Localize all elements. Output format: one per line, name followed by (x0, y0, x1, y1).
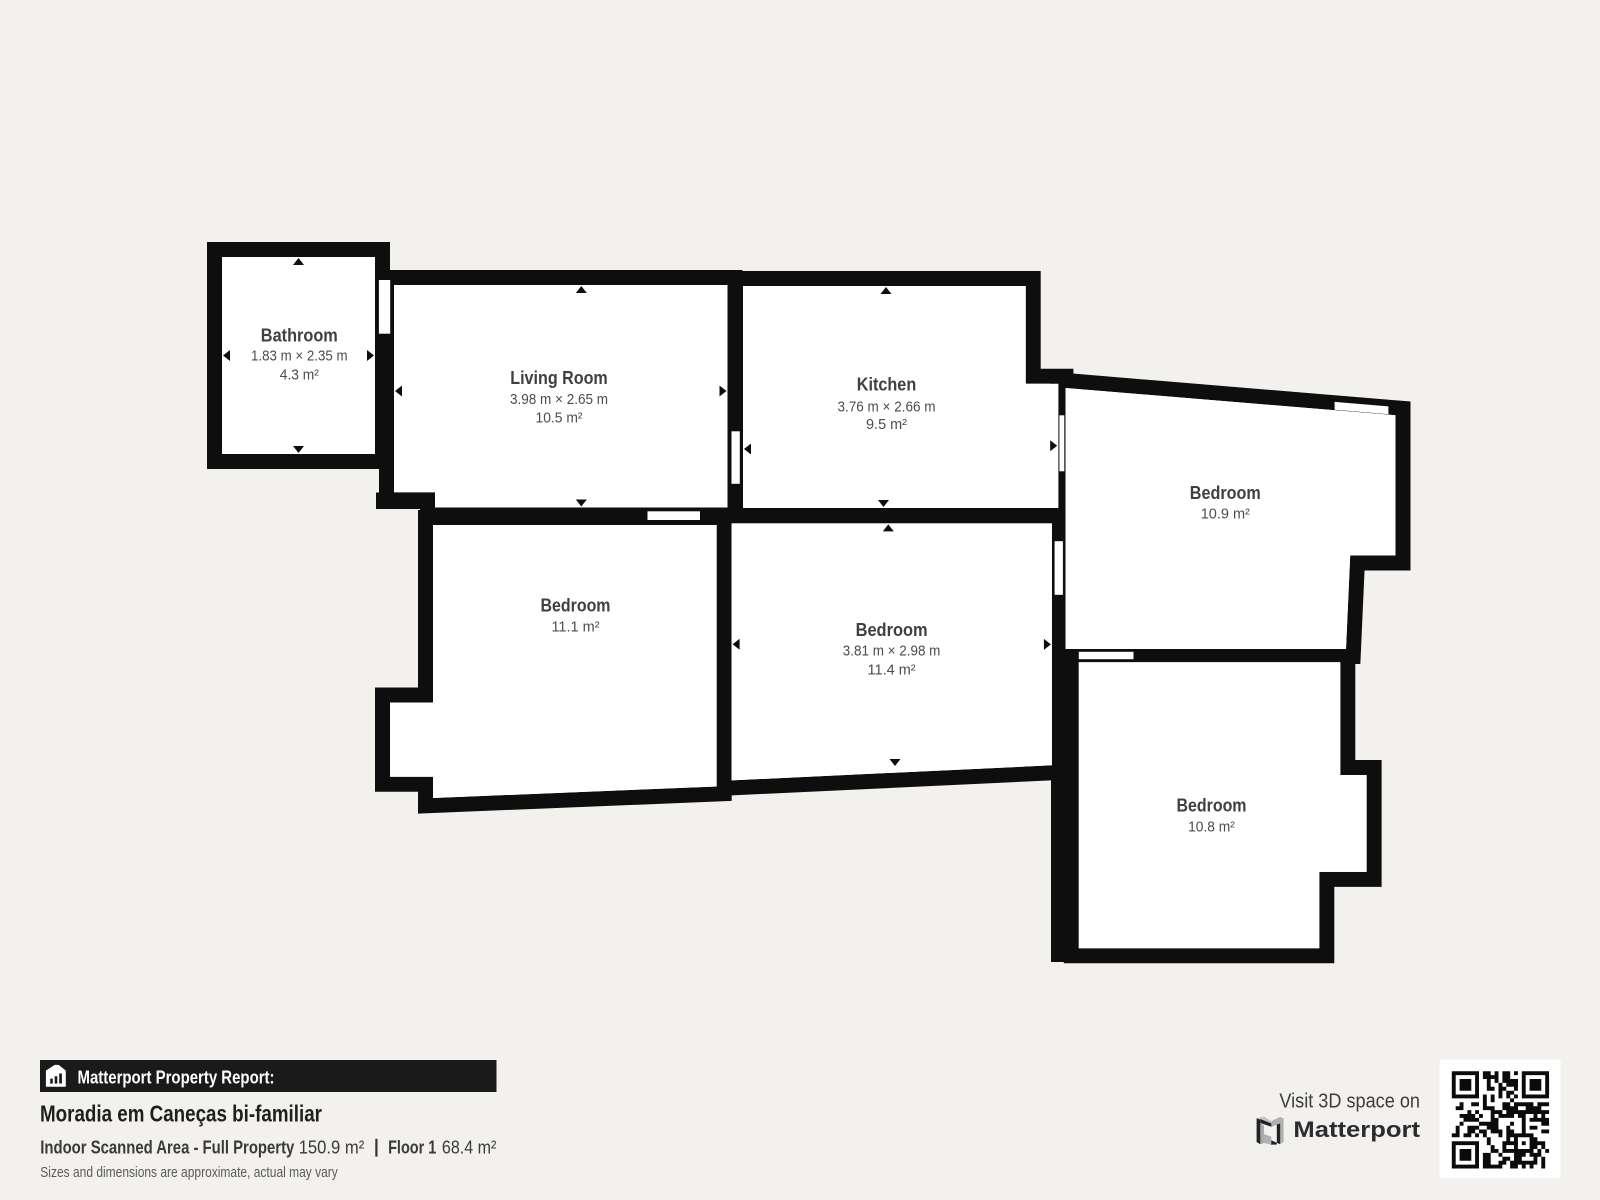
svg-text:Moradia em Caneças bi-familiar: Moradia em Caneças bi-familiar (40, 1100, 322, 1126)
svg-text:Bedroom: Bedroom (541, 596, 611, 616)
svg-text:11.4 m²: 11.4 m² (868, 663, 916, 679)
svg-text:Kitchen: Kitchen (857, 375, 917, 395)
svg-text:9.5 m²: 9.5 m² (866, 417, 907, 433)
svg-text:Bedroom: Bedroom (1177, 796, 1247, 816)
svg-text:4.3 m²: 4.3 m² (280, 368, 319, 384)
svg-text:3.81 m × 2.98 m: 3.81 m × 2.98 m (843, 643, 941, 659)
svg-text:10.5 m²: 10.5 m² (536, 411, 583, 427)
svg-text:3.76 m × 2.66 m: 3.76 m × 2.66 m (838, 399, 936, 415)
svg-text:Living Room: Living Room (510, 368, 608, 388)
svg-text:Bedroom: Bedroom (856, 620, 928, 640)
svg-text:10.9 m²: 10.9 m² (1201, 507, 1250, 523)
svg-text:1.83 m × 2.35 m: 1.83 m × 2.35 m (251, 348, 348, 364)
svg-text:Indoor Scanned Area - Full Pro: Indoor Scanned Area - Full Property (40, 1136, 295, 1157)
svg-text:3.98 m × 2.65 m: 3.98 m × 2.65 m (510, 392, 608, 408)
svg-text:150.9 m²: 150.9 m² (299, 1136, 365, 1157)
svg-text:Bathroom: Bathroom (261, 326, 338, 346)
svg-text:11.1 m²: 11.1 m² (551, 620, 599, 636)
svg-text:68.4 m²: 68.4 m² (442, 1136, 496, 1157)
svg-text:10.8 m²: 10.8 m² (1188, 820, 1235, 836)
svg-text:Sizes and dimensions are appro: Sizes and dimensions are approximate, ac… (40, 1164, 338, 1181)
svg-text:Matterport Property Report:: Matterport Property Report: (78, 1067, 275, 1087)
svg-text:Floor 1: Floor 1 (388, 1136, 436, 1157)
svg-text:Visit 3D space on: Visit 3D space on (1279, 1091, 1420, 1113)
svg-text:Matterport: Matterport (1293, 1117, 1420, 1142)
svg-text:Bedroom: Bedroom (1190, 483, 1261, 503)
